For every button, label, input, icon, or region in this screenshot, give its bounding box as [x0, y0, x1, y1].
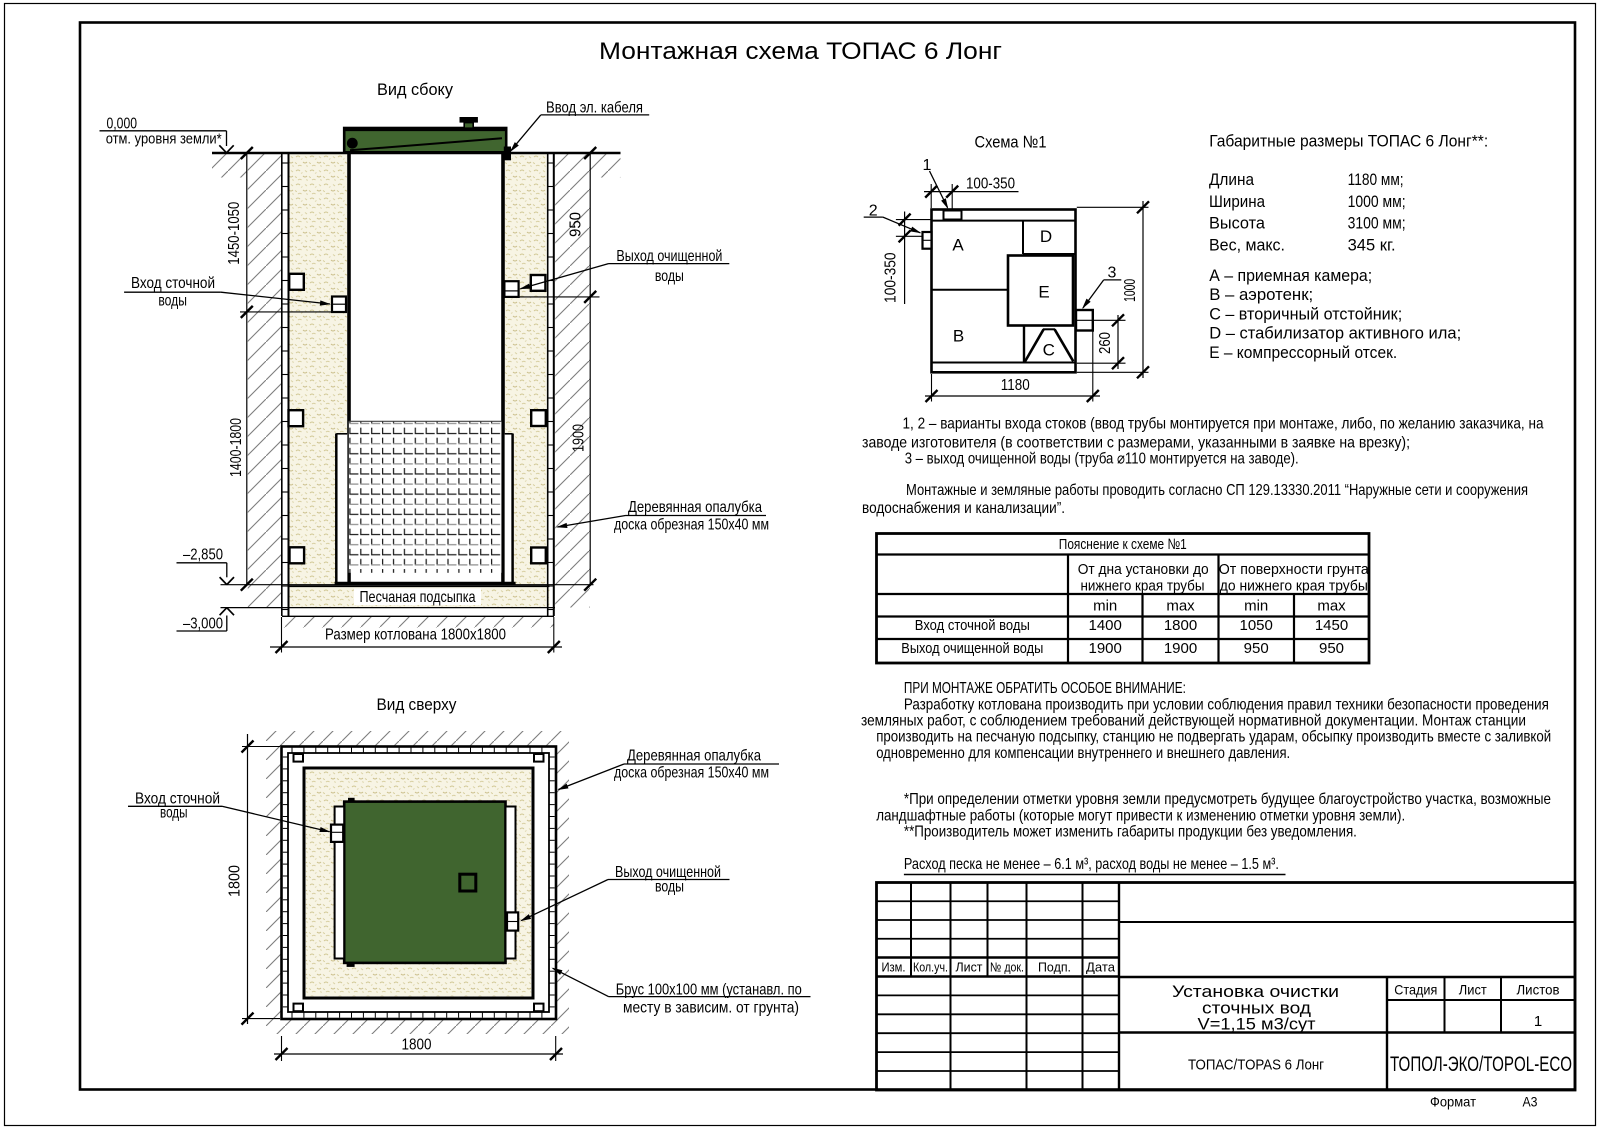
- svg-text:Изм.: Изм.: [882, 960, 906, 975]
- svg-text:–3,000: –3,000: [183, 616, 223, 633]
- svg-text:Ширина: Ширина: [1209, 192, 1265, 211]
- svg-text:1: 1: [1534, 1013, 1542, 1030]
- svg-text:С: С: [1043, 341, 1055, 360]
- svg-text:Е – компрессорный отсек.: Е – компрессорный отсек.: [1209, 343, 1397, 362]
- svg-text:С – вторичный отстойник;: С – вторичный отстойник;: [1209, 304, 1402, 323]
- svg-text:1, 2 – варианты входа стоков: 1, 2 – варианты входа стоков (ввод трубы…: [903, 416, 1544, 433]
- svg-text:Вход сточной: Вход сточной: [131, 275, 215, 292]
- svg-text:1000: 1000: [1122, 279, 1139, 302]
- svg-text:max: max: [1166, 598, 1195, 615]
- svg-text:1450-1050: 1450-1050: [226, 202, 243, 265]
- svg-text:воды: воды: [160, 805, 188, 822]
- svg-text:345 кг.: 345 кг.: [1348, 235, 1396, 254]
- svg-text:*При определении отметки уровн: *При определении отметки уровня земли пр…: [904, 791, 1551, 808]
- svg-text:Длина: Длина: [1209, 170, 1254, 189]
- svg-text:одновременно для компенсации в: одновременно для компенсации внутреннего…: [876, 745, 1290, 762]
- svg-text:отм. уровня земли*: отм. уровня земли*: [106, 131, 222, 148]
- svg-text:1900: 1900: [1164, 640, 1197, 657]
- svg-text:воды: воды: [655, 268, 684, 285]
- svg-text:Вес, макс.: Вес, макс.: [1209, 235, 1285, 254]
- svg-text:Размер котлована 1800х1800: Размер котлована 1800х1800: [325, 627, 506, 644]
- svg-text:земляных работ, с соблюдением: земляных работ, с соблюдением требований…: [861, 713, 1526, 730]
- svg-text:950: 950: [1319, 640, 1344, 657]
- svg-text:Монтажные и земляные работы пр: Монтажные и земляные работы проводить со…: [906, 482, 1528, 499]
- svg-text:1400: 1400: [1089, 617, 1122, 634]
- svg-text:Лист: Лист: [1459, 982, 1488, 998]
- svg-text:1050: 1050: [1240, 617, 1273, 634]
- svg-text:Вид сверху: Вид сверху: [377, 695, 457, 714]
- svg-text:нижнего края трубы: нижнего края трубы: [1081, 578, 1205, 595]
- svg-text:Пояснение к схеме №1: Пояснение к схеме №1: [1059, 536, 1187, 553]
- svg-text:Лист: Лист: [956, 960, 983, 975]
- svg-text:А: А: [952, 236, 964, 255]
- svg-text:100-350: 100-350: [966, 176, 1015, 193]
- svg-text:В: В: [953, 327, 964, 346]
- svg-text:Вход сточной воды: Вход сточной воды: [915, 617, 1030, 634]
- svg-text:Листов: Листов: [1517, 982, 1560, 998]
- svg-text:Подп.: Подп.: [1038, 960, 1071, 975]
- svg-text:доска обрезная 150х40 мм: доска обрезная 150х40 мм: [614, 517, 769, 534]
- svg-text:Е: Е: [1038, 283, 1049, 302]
- svg-text:D: D: [1040, 227, 1052, 246]
- svg-text:Деревянная опалубка: Деревянная опалубка: [627, 748, 761, 765]
- svg-text:воды: воды: [158, 293, 187, 310]
- svg-text:3100 мм;: 3100 мм;: [1348, 214, 1406, 233]
- svg-text:1450: 1450: [1315, 617, 1348, 634]
- svg-text:–2,850: –2,850: [183, 547, 223, 564]
- svg-text:**Производитель может изменить: **Производитель может изменить габариты …: [904, 824, 1357, 841]
- svg-text:V=1,15 м3/сут: V=1,15 м3/сут: [1198, 1015, 1316, 1034]
- svg-text:А – приемная камера;: А – приемная камера;: [1209, 266, 1372, 285]
- svg-text:1180: 1180: [1001, 377, 1030, 394]
- svg-text:Выход очищенной: Выход очищенной: [616, 248, 722, 265]
- svg-text:Ввод эл. кабеля: Ввод эл. кабеля: [546, 100, 643, 117]
- svg-text:ТОПОЛ-ЭКО/TOPOL-ECO: ТОПОЛ-ЭКО/TOPOL-ECO: [1390, 1053, 1572, 1076]
- svg-text:Дата: Дата: [1086, 960, 1116, 975]
- svg-text:Вид сбоку: Вид сбоку: [377, 80, 453, 99]
- svg-text:3: 3: [1108, 265, 1117, 282]
- svg-text:3 – выход очищенной воды (труб: 3 – выход очищенной воды (труба ⌀110 мон…: [905, 451, 1299, 468]
- svg-text:доска обрезная 150х40 мм: доска обрезная 150х40 мм: [614, 765, 769, 782]
- svg-text:D – стабилизатор активного ила: D – стабилизатор активного ила;: [1209, 324, 1461, 343]
- svg-text:Схема №1: Схема №1: [975, 133, 1047, 152]
- svg-text:В – аэротенк;: В – аэротенк;: [1209, 285, 1313, 304]
- svg-text:водоснабжения и канализации”.: водоснабжения и канализации”.: [862, 500, 1065, 517]
- svg-text:Формат: Формат: [1430, 1094, 1477, 1110]
- svg-text:1180 мм;: 1180 мм;: [1348, 170, 1404, 189]
- svg-text:Высота: Высота: [1209, 214, 1266, 233]
- svg-text:260: 260: [1097, 332, 1114, 354]
- svg-text:Разработку котлована производи: Разработку котлована производить при усл…: [904, 696, 1549, 713]
- svg-text:1000 мм;: 1000 мм;: [1348, 192, 1406, 211]
- svg-text:Стадия: Стадия: [1394, 982, 1437, 998]
- svg-text:заводе изготовителя (в соответ: заводе изготовителя (в соответствии с ра…: [862, 435, 1410, 452]
- svg-text:Выход очищенной воды: Выход очищенной воды: [901, 640, 1043, 657]
- svg-text:месту в зависим. от грунта): месту в зависим. от грунта): [623, 1000, 799, 1017]
- svg-text:950: 950: [1244, 640, 1269, 657]
- svg-text:ТОПАС/TOPAS 6 Лонг: ТОПАС/TOPAS 6 Лонг: [1188, 1057, 1324, 1074]
- svg-text:производить на песчаную подсып: производить на песчаную подсыпку, станци…: [876, 729, 1551, 746]
- svg-text:1900: 1900: [571, 424, 588, 452]
- svg-text:1800: 1800: [227, 865, 244, 897]
- svg-text:950: 950: [568, 212, 585, 237]
- svg-text:до нижнего края трубы: до нижнего края трубы: [1220, 578, 1368, 595]
- svg-text:Кол.уч.: Кол.уч.: [913, 960, 948, 975]
- svg-text:От дна установки до: От дна установки до: [1078, 561, 1209, 578]
- svg-text:1800: 1800: [402, 1037, 432, 1054]
- svg-text:max: max: [1317, 598, 1346, 615]
- svg-text:100-350: 100-350: [882, 252, 899, 303]
- svg-text:Габаритные размеры ТОПАС 6 Лон: Габаритные размеры ТОПАС 6 Лонг**:: [1209, 132, 1488, 151]
- svg-text:От поверхности грунта: От поверхности грунта: [1219, 561, 1370, 578]
- svg-text:1800: 1800: [1164, 617, 1197, 634]
- svg-text:1400-1800: 1400-1800: [228, 418, 245, 477]
- svg-text:№ док.: № док.: [990, 960, 1024, 975]
- svg-text:Монтажная схема ТОПАС 6 Лонг: Монтажная схема ТОПАС 6 Лонг: [599, 38, 1002, 65]
- svg-text:воды: воды: [655, 879, 684, 896]
- svg-text:А3: А3: [1523, 1094, 1538, 1110]
- svg-text:Песчаная подсыпка: Песчаная подсыпка: [360, 589, 476, 606]
- svg-text:1900: 1900: [1089, 640, 1122, 657]
- svg-text:ландшафтные работы (которые мо: ландшафтные работы (которые могут привес…: [876, 807, 1405, 824]
- svg-text:Расход песка не менее – 6.1 м³: Расход песка не менее – 6.1 м³, расход в…: [904, 856, 1279, 873]
- svg-text:min: min: [1093, 598, 1117, 615]
- svg-text:min: min: [1244, 598, 1268, 615]
- svg-text:Деревянная опалубка: Деревянная опалубка: [628, 499, 762, 516]
- svg-text:ПРИ МОНТАЖЕ ОБРАТИТЬ ОСОБОЕ ВН: ПРИ МОНТАЖЕ ОБРАТИТЬ ОСОБОЕ ВНИМАНИЕ:: [904, 680, 1186, 697]
